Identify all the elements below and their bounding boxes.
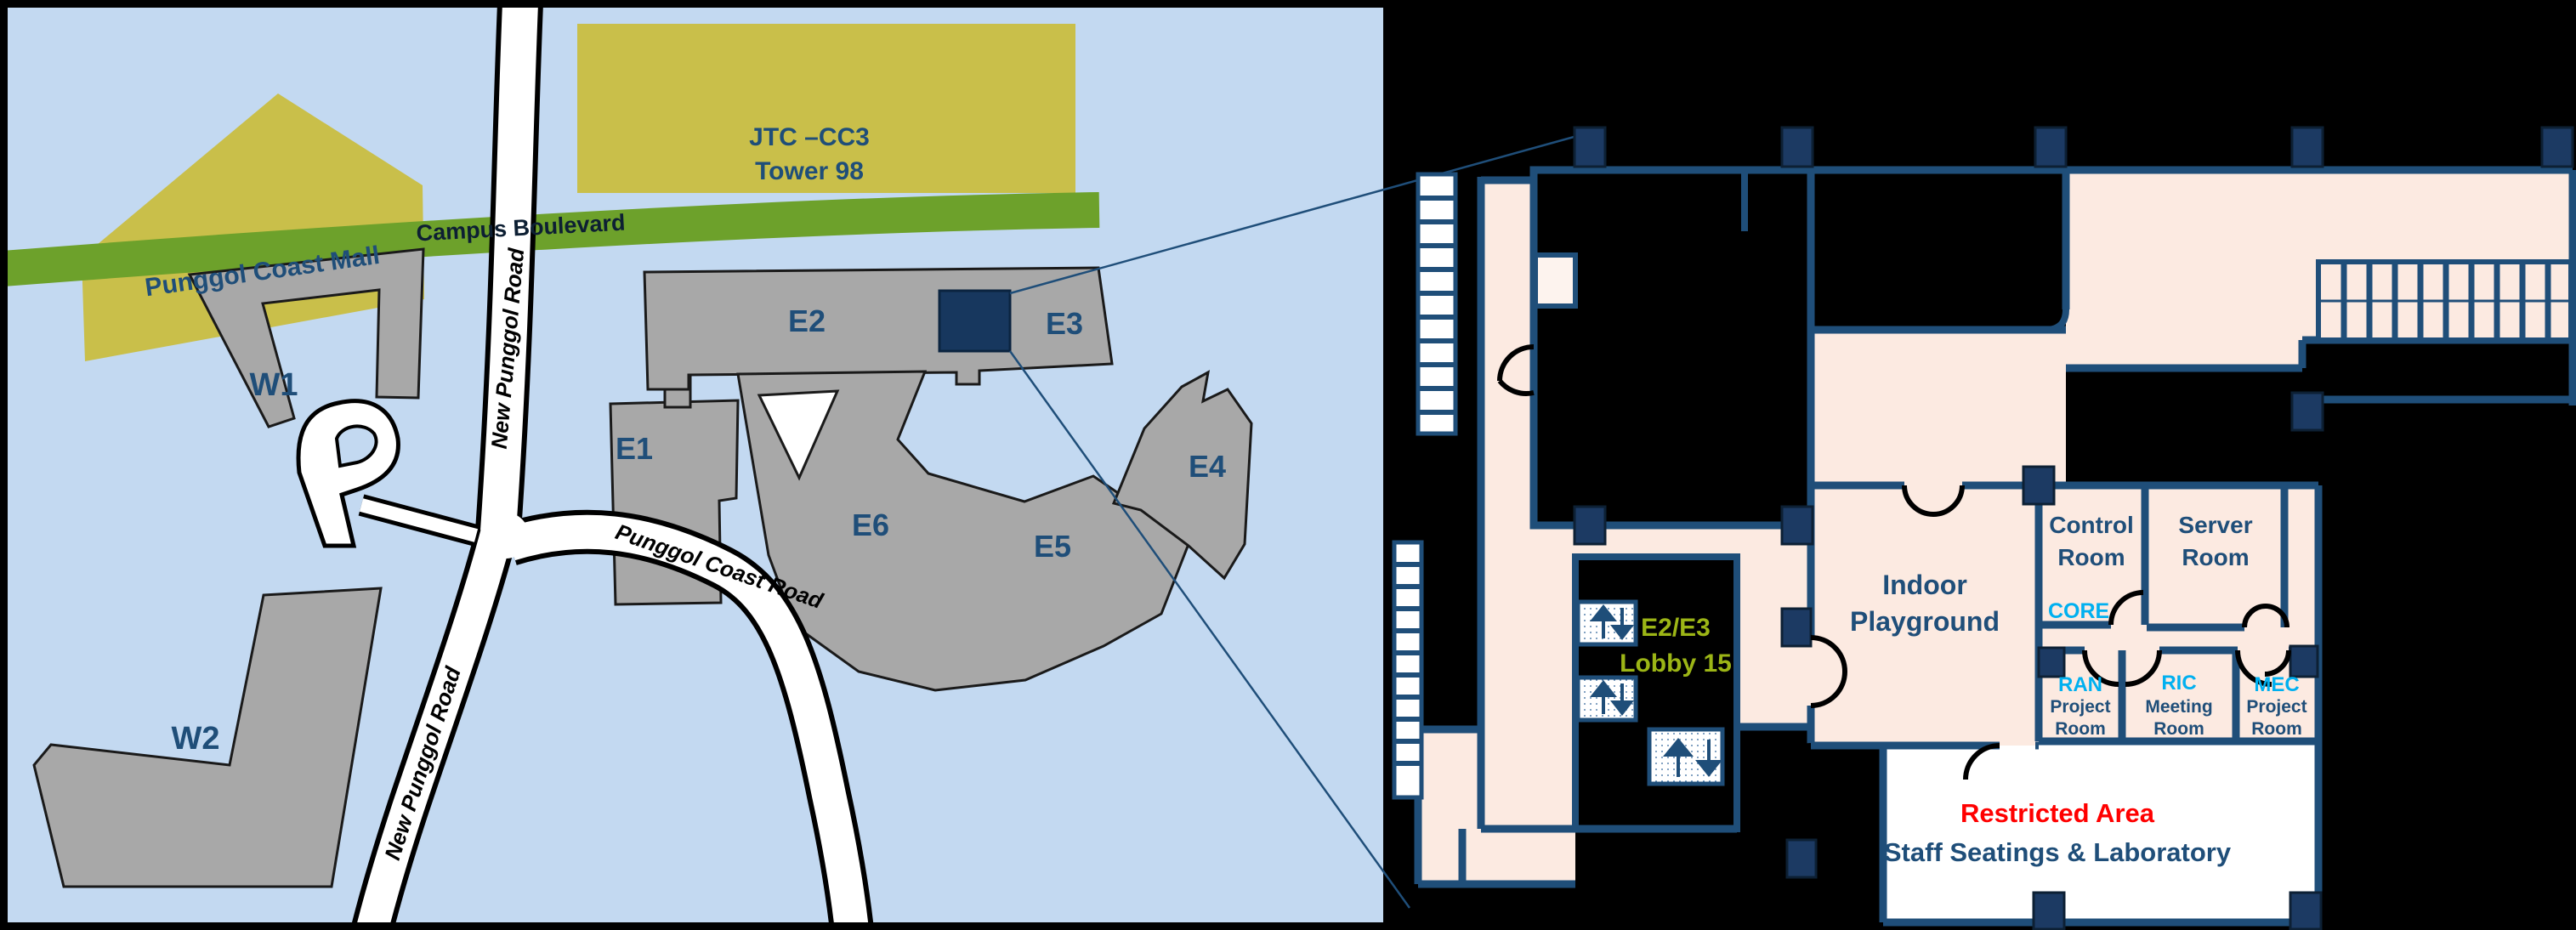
playground-label-line2: Playground [1850, 606, 2000, 637]
floor-corridor-upper [1481, 180, 1534, 529]
room-top-left [1534, 170, 1811, 525]
floor-corridor-lower [1481, 557, 1575, 829]
mec-tag: MEC [2254, 673, 2299, 696]
floorplan: E2/E3 Lobby 15 Indoor Playground Control… [1394, 128, 2573, 929]
stairs-upper-left [1418, 174, 1455, 434]
playground-label-line1: Indoor [1882, 570, 1967, 600]
server-room-label-line1: Server [2178, 512, 2252, 538]
stairs-lower-left [1394, 542, 1421, 797]
lobby-label-line1: E2/E3 [1641, 614, 1711, 642]
ric-tag: RIC [2161, 672, 2196, 695]
lobby-label-line2: Lobby 15 [1620, 649, 1732, 678]
server-room-label-line2: Room [2182, 544, 2249, 570]
building-e6-label: E6 [852, 508, 889, 542]
building-e2-label: E2 [788, 303, 826, 338]
mec-label-line2: Room [2251, 719, 2302, 739]
road-junction [483, 513, 529, 559]
building-w1-label: W1 [250, 367, 298, 403]
ric-label-line2: Room [2153, 719, 2204, 739]
elevator-icon-2 [1578, 678, 1636, 720]
floor-restricted-area [1883, 741, 2318, 922]
building-e4-label: E4 [1189, 449, 1226, 484]
door-outside-restricted [1777, 746, 1811, 780]
ran-label-line2: Room [2055, 719, 2106, 739]
floor-mid-corridor [1811, 330, 2066, 485]
ran-tag: RAN [2058, 673, 2102, 696]
room-top-left-notch [1535, 255, 1575, 306]
building-e1-label: E1 [616, 431, 653, 466]
campus-map: Punggol Coast Mall JTC –CC3 Tower 98 Cam… [3, 3, 1387, 930]
jtc-label-line1: JTC –CC3 [749, 123, 870, 151]
jtc-label-line2: Tower 98 [755, 157, 864, 185]
restricted-area-sublabel: Staff Seatings & Laboratory [1884, 837, 2232, 867]
floor-corridor-tail [1462, 829, 1575, 884]
control-room-label-line2: Room [2057, 544, 2125, 570]
ran-label-line1: Project [2050, 697, 2110, 717]
floor-corridor-band [1481, 529, 1811, 557]
building-w2-label: W2 [172, 721, 220, 757]
elevator-icon-3 [1649, 729, 1722, 784]
control-room-label-line1: Control [2049, 512, 2134, 538]
building-e3-label: E3 [1046, 306, 1083, 341]
core-tag: CORE [2048, 599, 2109, 623]
campus-map-and-floorplan: Punggol Coast Mall JTC –CC3 Tower 98 Cam… [0, 0, 2576, 930]
highlighted-location [939, 291, 1010, 351]
stairs-top-right [2318, 262, 2571, 340]
restricted-area-label: Restricted Area [1960, 798, 2155, 828]
wall-mid-corner [2045, 309, 2066, 330]
building-e5-label: E5 [1034, 529, 1071, 564]
elevator-icon-1 [1578, 602, 1636, 644]
ric-label-line1: Meeting [2145, 697, 2212, 717]
mec-label-line1: Project [2246, 697, 2306, 717]
